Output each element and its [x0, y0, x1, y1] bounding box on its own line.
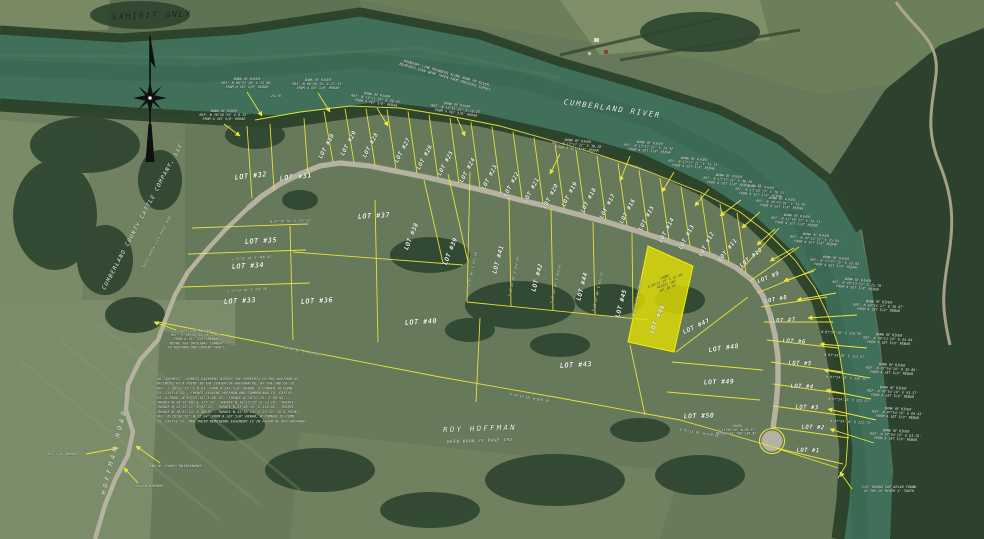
lot-label-4: LOT #4 — [790, 384, 814, 391]
lot-label-37: LOT #37 — [358, 211, 391, 221]
farm-building — [594, 38, 599, 42]
poi-note-5: 5/8" REBAR CAP #2148 FOUNDAT THE OF RIVE… — [862, 485, 917, 493]
lot-label-7: LOT #7 — [772, 317, 796, 324]
lot-label-50: LOT #50 — [684, 411, 715, 420]
lot-label-5: LOT #5 — [788, 361, 812, 368]
farm-building — [604, 50, 608, 54]
bearing-text-17: 24.76' — [271, 94, 283, 98]
compass-star — [133, 81, 167, 115]
lot-label-40: LOT #40 — [405, 317, 438, 327]
lot-label-34: LOT #34 — [232, 261, 265, 271]
lot-label-6: LOT #6 — [782, 338, 806, 345]
lot-label-36: LOT #36 — [301, 296, 334, 306]
plat-map: EXHIBIT ONLYCUMBERLAND RIVERCUMBERLAND C… — [0, 0, 984, 539]
lot-label-43: LOT #43 — [560, 360, 593, 370]
poi-note-3: END OF COUNTY MAINTENANCE — [150, 464, 204, 468]
lot-label-1: LOT #1 — [796, 448, 820, 455]
lot-label-2: LOT #2 — [801, 425, 825, 432]
lot-label-3: LOT #3 — [795, 405, 819, 412]
poi-note-2: SET 5/8" REBAR — [47, 452, 77, 456]
bearing-text-18: 48.73' — [751, 184, 763, 188]
lot-label-33: LOT #33 — [224, 296, 257, 306]
farm-building — [588, 52, 591, 55]
plat-map-screenshot: EXHIBIT ONLYCUMBERLAND RIVERCUMBERLAND C… — [0, 0, 984, 539]
poi-note-4: FLUSH HYDRANT — [136, 484, 164, 488]
lot-label-35: LOT #35 — [245, 236, 278, 246]
lot-label-49: LOT #49 — [704, 377, 735, 386]
easement-note: 40' INGRESS - EGRESS EASEMENT ACROSS THE… — [157, 377, 305, 423]
